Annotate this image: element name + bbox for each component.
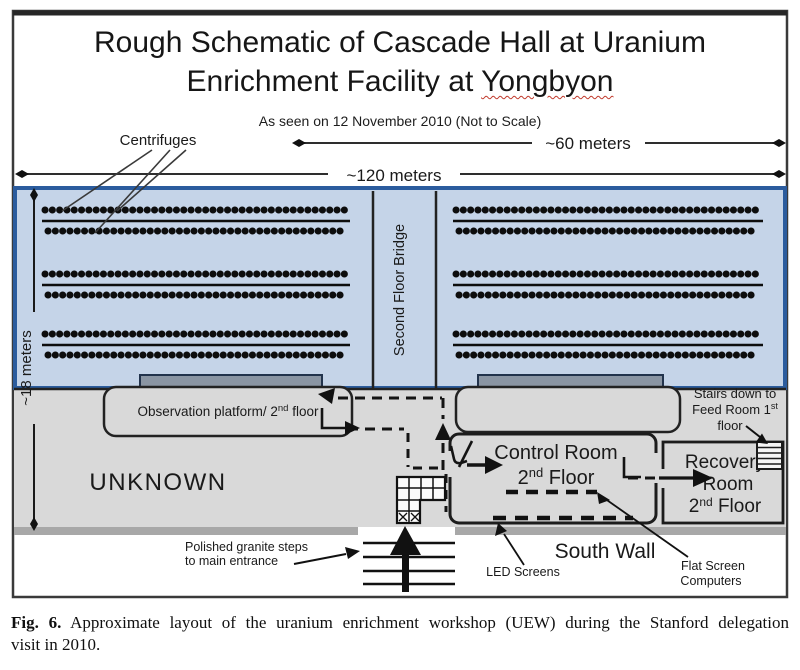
observation-window-left	[140, 375, 322, 387]
led-screens-label: LED Screens	[486, 565, 560, 579]
observation-window-right	[478, 375, 663, 387]
caption-fig-number: Fig. 6.	[11, 613, 61, 632]
figure-title-underlined-word: Yongbyon	[481, 65, 613, 98]
observation-platform-label: Observation platform/ 2nd floor	[138, 403, 319, 419]
right-platform-box	[456, 387, 680, 432]
figure-subtitle: As seen on 12 November 2010 (Not to Scal…	[0, 113, 800, 129]
caption-line1: Fig. 6. Approximate layout of the uraniu…	[11, 612, 789, 634]
svg-text:Stairs down to: Stairs down to	[694, 386, 776, 401]
figure-title-line2: Enrichment Facility at Yongbyon	[0, 63, 800, 101]
figure: Second Floor Bridge ~120 meters ~60 mete…	[0, 0, 800, 670]
width-60-label: ~60 meters	[545, 134, 631, 153]
stairs-icon	[757, 442, 782, 469]
figure-title-line1: Rough Schematic of Cascade Hall at Urani…	[0, 24, 800, 62]
svg-text:Flat Screen: Flat Screen	[681, 559, 745, 573]
svg-text:to main entrance: to main entrance	[185, 554, 278, 568]
width-120-label: ~120 meters	[347, 166, 442, 185]
south-wall-label: South Wall	[555, 540, 656, 563]
bridge-label: Second Floor Bridge	[392, 224, 408, 356]
svg-text:Polished granite steps: Polished granite steps	[185, 540, 308, 554]
svg-text:floor: floor	[717, 418, 743, 433]
centrifuges-label: Centrifuges	[120, 132, 197, 149]
flat-screens-label: Flat Screen Computers	[680, 559, 745, 588]
figure-caption: Fig. 6. Approximate layout of the uraniu…	[11, 612, 789, 656]
south-wall-bar-left	[14, 527, 358, 535]
control-room-label-line1: Control Room	[494, 442, 617, 464]
height-18-label: ~18 meters	[18, 330, 35, 405]
svg-text:Computers: Computers	[680, 574, 741, 588]
figure-title-line2-pre: Enrichment Facility at	[187, 65, 482, 98]
caption-text: Approximate layout of the uranium enrich…	[70, 613, 789, 632]
unknown-label: UNKNOWN	[89, 469, 226, 496]
svg-text:Feed Room 1st: Feed Room 1st	[692, 401, 778, 417]
recovery-room-label-line1: Recovery	[685, 452, 766, 473]
caption-line2: visit in 2010.	[11, 634, 789, 656]
